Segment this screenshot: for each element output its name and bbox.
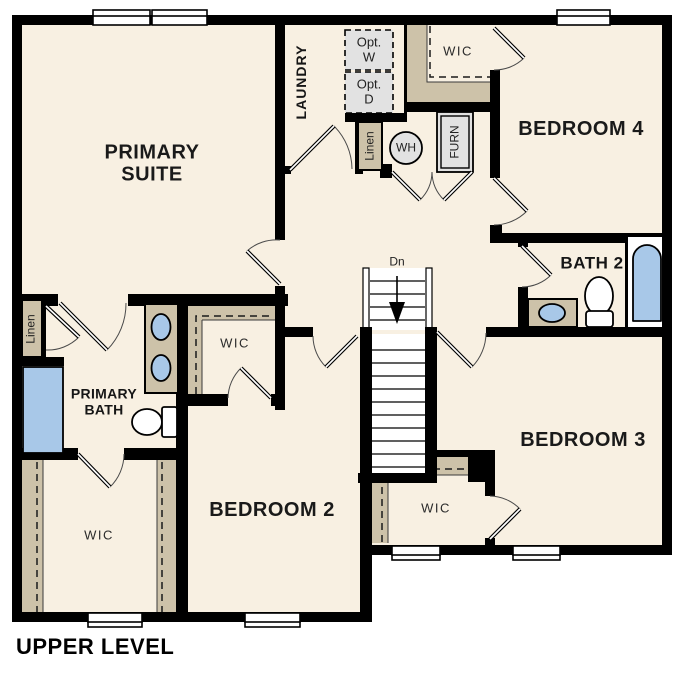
room-label-bedroom4: BEDROOM 4 [481,118,681,140]
stair-rail-right [426,268,432,328]
primary-vanity-icon [145,304,178,393]
stairs-down-label: Dn [389,255,404,268]
bath2-toilet-icon [585,277,613,327]
wall-segment [404,102,500,112]
window [152,10,207,25]
room-label-wic-middle: WIC [220,337,250,352]
wall-segment [427,450,468,457]
room-label-bedroom2: BEDROOM 2 [167,499,377,521]
room-label-primary-bath: PRIMARY BATH [60,386,148,417]
wall-segment [12,15,22,622]
plan-title: UPPER LEVEL [16,634,174,660]
window [93,10,150,25]
linen-top-label: Linen [363,131,376,160]
room-label-wic-top: WIC [443,45,473,60]
room-label-primary-suite: PRIMARY SUITE [87,142,217,187]
optional-dryer-label: Opt. D [351,77,387,106]
floor-plan: PRIMARY SUITE LAUNDRY Opt. W Opt. D WIC … [0,0,687,687]
bathtub-icon [628,237,662,327]
furnace-label: FURN [448,125,461,158]
wall-segment [662,15,672,555]
wall-segment [485,482,495,496]
chase-block [468,450,495,482]
floor-plan-drawing [0,0,687,687]
wall-segment [275,327,313,337]
room-label-wic-primary: WIC [84,529,114,544]
wall-segment [345,113,407,122]
room-label-laundry: LAUNDRY [294,45,310,120]
window [245,613,300,627]
stair-rail-left [363,268,369,328]
wall-segment [12,612,372,622]
staircase [363,268,432,475]
window [392,546,440,560]
linen-left-label: Linen [24,314,37,343]
wall-segment [625,237,628,327]
room-label-bath2: BATH 2 [560,253,624,272]
room-label-wic-bedroom3: WIC [421,502,451,517]
wall-segment [275,166,291,174]
wall-segment [275,25,285,240]
wall-segment [360,327,372,618]
optional-washer-label: Opt. W [351,35,387,64]
window [557,10,610,25]
bath2-vanity-icon [528,299,577,327]
shower-icon [23,367,63,453]
water-heater-label: WH [396,141,416,154]
window [513,546,560,560]
wall-segment [358,473,437,483]
wall-segment [188,394,228,406]
room-label-bedroom3: BEDROOM 3 [478,429,687,451]
wall-segment [271,394,285,406]
wall-segment [425,327,437,483]
wall-segment [485,538,495,550]
wall-segment [124,448,188,460]
window [88,613,142,627]
wall-segment [486,327,662,337]
wall-segment [404,22,407,113]
